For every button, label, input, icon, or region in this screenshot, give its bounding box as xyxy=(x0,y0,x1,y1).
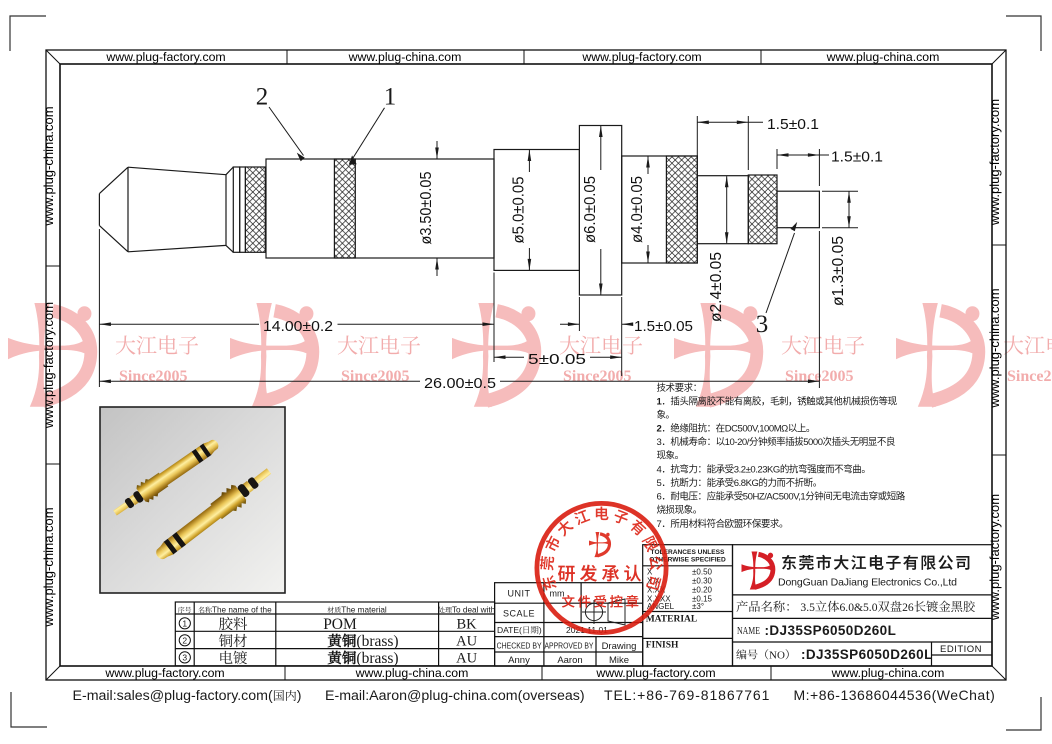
svg-text:ø6.0±0.05: ø6.0±0.05 xyxy=(582,176,599,243)
svg-text:±0.20: ±0.20 xyxy=(692,586,713,595)
svg-text:2: 2 xyxy=(256,84,269,111)
svg-text:江: 江 xyxy=(571,505,593,530)
svg-text:Drawing: Drawing xyxy=(602,641,637,652)
svg-text:Since2005: Since2005 xyxy=(341,368,409,385)
svg-text:电: 电 xyxy=(594,503,609,524)
svg-text:DongGuan DaJiang Electronics C: DongGuan DaJiang Electronics Co.,Ltd xyxy=(778,577,957,589)
svg-text:Since2005: Since2005 xyxy=(563,368,631,385)
svg-text:FINISH: FINISH xyxy=(646,641,679,651)
svg-text:ø2.4±0.05: ø2.4±0.05 xyxy=(708,252,725,322)
svg-text:BK: BK xyxy=(457,616,478,632)
svg-text:序号: 序号 xyxy=(178,605,192,615)
svg-text:SCALE: SCALE xyxy=(503,609,535,619)
svg-text:www.plug-china.com: www.plug-china.com xyxy=(987,288,1002,408)
svg-text:6．耐电压：应能承受50HZ/AC500V,1分钟间无电流击: 6．耐电压：应能承受50HZ/AC500V,1分钟间无电流击穿或短路 xyxy=(657,491,906,503)
svg-text:±3°: ±3° xyxy=(692,602,704,611)
svg-text:5±0.05: 5±0.05 xyxy=(528,352,586,368)
svg-text:www.plug-factory.com: www.plug-factory.com xyxy=(987,494,1002,621)
svg-text:www.plug-china.com: www.plug-china.com xyxy=(831,666,945,680)
svg-text:Since2005: Since2005 xyxy=(1007,368,1052,385)
svg-text:www.plug-factory.com: www.plug-factory.com xyxy=(41,302,56,429)
svg-text:材质The material: 材质The material xyxy=(327,606,387,616)
svg-text:www.plug-factory.com: www.plug-factory.com xyxy=(105,50,225,64)
svg-text:Since2005: Since2005 xyxy=(119,368,187,385)
svg-text:烧损现象。: 烧损现象。 xyxy=(657,504,702,516)
svg-text:5．抗断力：能承受6.8KG的力而不折断。: 5．抗断力：能承受6.8KG的力而不折断。 xyxy=(657,477,822,489)
svg-text:电镀: 电镀 xyxy=(219,647,248,668)
svg-text:www.plug-china.com: www.plug-china.com xyxy=(826,50,940,64)
svg-text::DJ35SP6050D260L: :DJ35SP6050D260L xyxy=(801,647,933,662)
svg-text::DJ35SP6050D260L: :DJ35SP6050D260L xyxy=(765,623,897,638)
svg-text:www.plug-china.com: www.plug-china.com xyxy=(348,50,462,64)
svg-text:E-mail:Aaron@plug-china.com(ov: E-mail:Aaron@plug-china.com(overseas) xyxy=(325,688,585,704)
svg-text:现象。: 现象。 xyxy=(657,450,684,462)
svg-text:公: 公 xyxy=(645,555,667,572)
svg-text:AU: AU xyxy=(456,633,477,649)
svg-text:产品名称： 3.5立体6.0&5.0双盘26长镀金黑胶: 产品名称： 3.5立体6.0&5.0双盘26长镀金黑胶 xyxy=(736,597,976,615)
svg-text:www.plug-factory.com: www.plug-factory.com xyxy=(581,50,701,64)
svg-text:AU: AU xyxy=(456,650,477,666)
svg-text:黄铜(brass): 黄铜(brass) xyxy=(327,647,398,668)
svg-text:www.plug-factory.com: www.plug-factory.com xyxy=(987,99,1002,226)
svg-text:3．机械寿命：以10-20/分钟频率插拔5000次插头无明显: 3．机械寿命：以10-20/分钟频率插拔5000次插头无明显不良 xyxy=(657,436,896,448)
svg-text:1.5±0.1: 1.5±0.1 xyxy=(831,150,883,166)
svg-text:大江电子: 大江电子 xyxy=(1003,330,1052,360)
svg-text:ø3.50±0.05: ø3.50±0.05 xyxy=(418,171,435,244)
svg-text:象。: 象。 xyxy=(657,409,675,421)
svg-text:CHECKED BY: CHECKED BY xyxy=(497,641,543,650)
svg-text:技术要求：: 技术要求： xyxy=(657,382,702,394)
svg-text:www.plug-china.com: www.plug-china.com xyxy=(41,106,56,226)
svg-text:研发承认: 研发承认 xyxy=(558,560,646,586)
svg-text:TEL:+86-769-81867761: TEL:+86-769-81867761 xyxy=(604,687,770,703)
svg-text:2: 2 xyxy=(182,636,187,646)
svg-text:Aaron: Aaron xyxy=(557,655,582,666)
svg-text:东莞市大江电子有限公司: 东莞市大江电子有限公司 xyxy=(781,550,972,574)
svg-text:处理To deal with: 处理To deal with xyxy=(438,606,496,616)
svg-text:14.00±0.2: 14.00±0.2 xyxy=(263,319,333,335)
svg-text:±0.30: ±0.30 xyxy=(692,576,713,585)
svg-text:ø4.0±0.05: ø4.0±0.05 xyxy=(629,176,646,243)
svg-text:ø5.0±0.05: ø5.0±0.05 xyxy=(511,176,528,243)
svg-text:MATERIAL: MATERIAL xyxy=(646,615,698,625)
svg-text:NAME: NAME xyxy=(737,626,760,637)
svg-text:APPROVED BY: APPROVED BY xyxy=(545,641,595,650)
svg-text:Anny: Anny xyxy=(508,655,530,666)
svg-text:±0.50: ±0.50 xyxy=(692,567,713,576)
svg-text:EDITION: EDITION xyxy=(940,644,982,655)
svg-text:4．抗弯力：能承受3.2±0.23KG的抗弯强度而不弯曲。: 4．抗弯力：能承受3.2±0.23KG的抗弯强度而不弯曲。 xyxy=(657,463,871,475)
svg-text:UNIT: UNIT xyxy=(508,589,531,599)
svg-text:莞: 莞 xyxy=(536,555,558,572)
svg-text:26.00±0.5: 26.00±0.5 xyxy=(424,376,496,392)
svg-text:www.plug-china.com: www.plug-china.com xyxy=(355,666,469,680)
svg-text:大江电子: 大江电子 xyxy=(337,330,421,360)
svg-text:E-mail:sales@plug-factory.com(: E-mail:sales@plug-factory.com(国内) xyxy=(73,687,302,704)
svg-text:编号（NO）: 编号（NO） xyxy=(736,647,796,663)
svg-text:www.plug-factory.com: www.plug-factory.com xyxy=(595,666,715,680)
svg-text:www.plug-factory.com: www.plug-factory.com xyxy=(104,666,224,680)
svg-text:M:+86-13686044536(WeChat): M:+86-13686044536(WeChat) xyxy=(794,687,996,703)
svg-text:3: 3 xyxy=(182,653,187,663)
svg-text:大江电子: 大江电子 xyxy=(781,330,865,360)
svg-text:DATE(日期): DATE(日期) xyxy=(497,624,542,636)
svg-text:1．插头隔离胶不能有离胶，毛刺，锈触或其他机械损伤等现: 1．插头隔离胶不能有离胶，毛刺，锈触或其他机械损伤等现 xyxy=(657,396,898,408)
svg-text:3: 3 xyxy=(756,311,769,338)
svg-text:ø1.3±0.05: ø1.3±0.05 xyxy=(830,236,847,306)
svg-text:1: 1 xyxy=(182,619,187,629)
svg-text:2．绝缘阻抗：在DC500V,100MΩ以上。: 2．绝缘阻抗：在DC500V,100MΩ以上。 xyxy=(657,423,816,435)
svg-text:1: 1 xyxy=(384,84,397,111)
svg-text:www.plug-china.com: www.plug-china.com xyxy=(41,507,56,627)
svg-text:Mike: Mike xyxy=(609,655,629,666)
svg-text:1.5±0.05: 1.5±0.05 xyxy=(634,319,693,335)
svg-text:1.5±0.1: 1.5±0.1 xyxy=(767,117,819,133)
svg-text:文件受控章: 文件受控章 xyxy=(562,591,642,611)
svg-text:大江电子: 大江电子 xyxy=(115,330,199,360)
svg-text:7．所用材料符合欧盟环保要求。: 7．所用材料符合欧盟环保要求。 xyxy=(657,518,789,530)
